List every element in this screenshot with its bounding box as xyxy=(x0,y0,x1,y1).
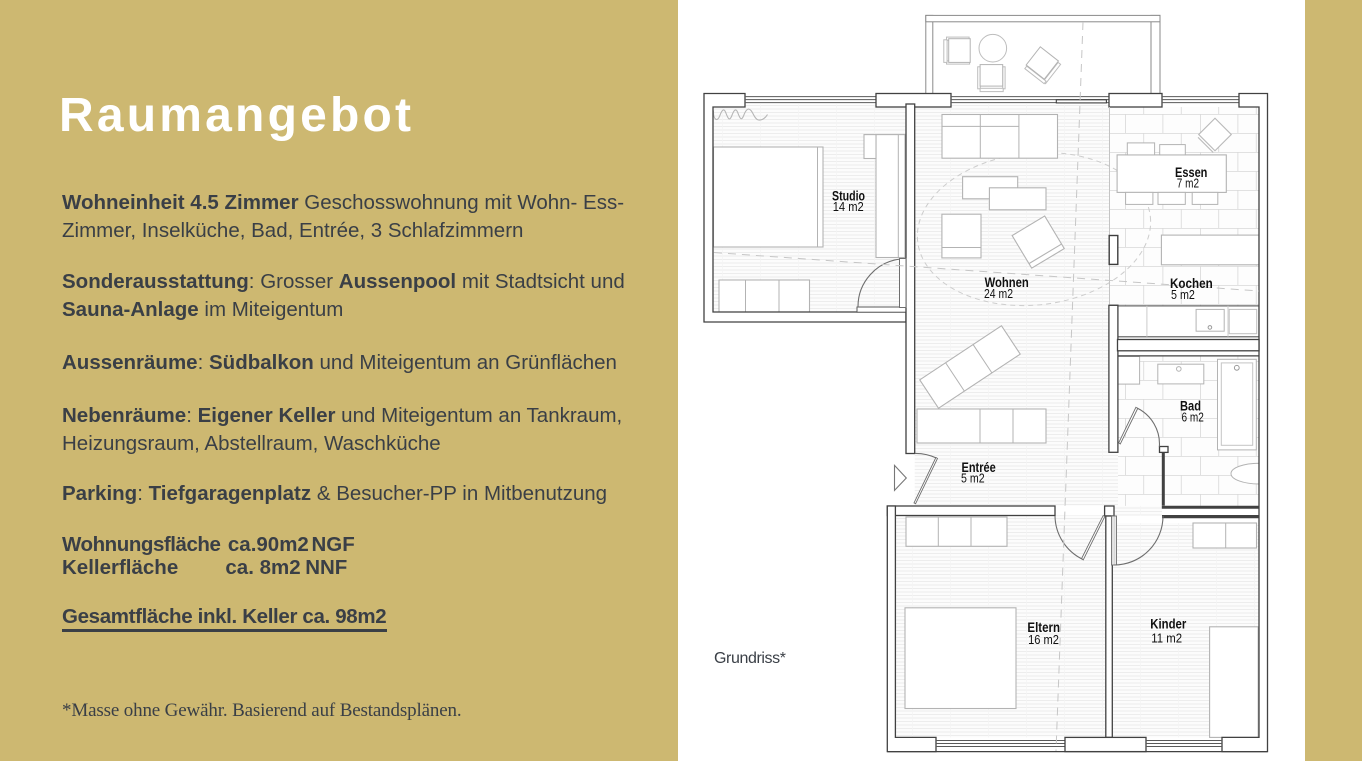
svg-text:11 m2: 11 m2 xyxy=(1151,631,1182,646)
svg-text:6 m2: 6 m2 xyxy=(1182,409,1204,424)
svg-text:5 m2: 5 m2 xyxy=(961,471,985,486)
svg-text:24 m2: 24 m2 xyxy=(984,286,1013,301)
svg-text:14 m2: 14 m2 xyxy=(833,199,864,214)
svg-text:16 m2: 16 m2 xyxy=(1028,632,1059,647)
svg-text:5 m2: 5 m2 xyxy=(1171,287,1195,302)
svg-text:Kinder: Kinder xyxy=(1150,617,1187,632)
svg-text:7 m2: 7 m2 xyxy=(1177,176,1199,191)
